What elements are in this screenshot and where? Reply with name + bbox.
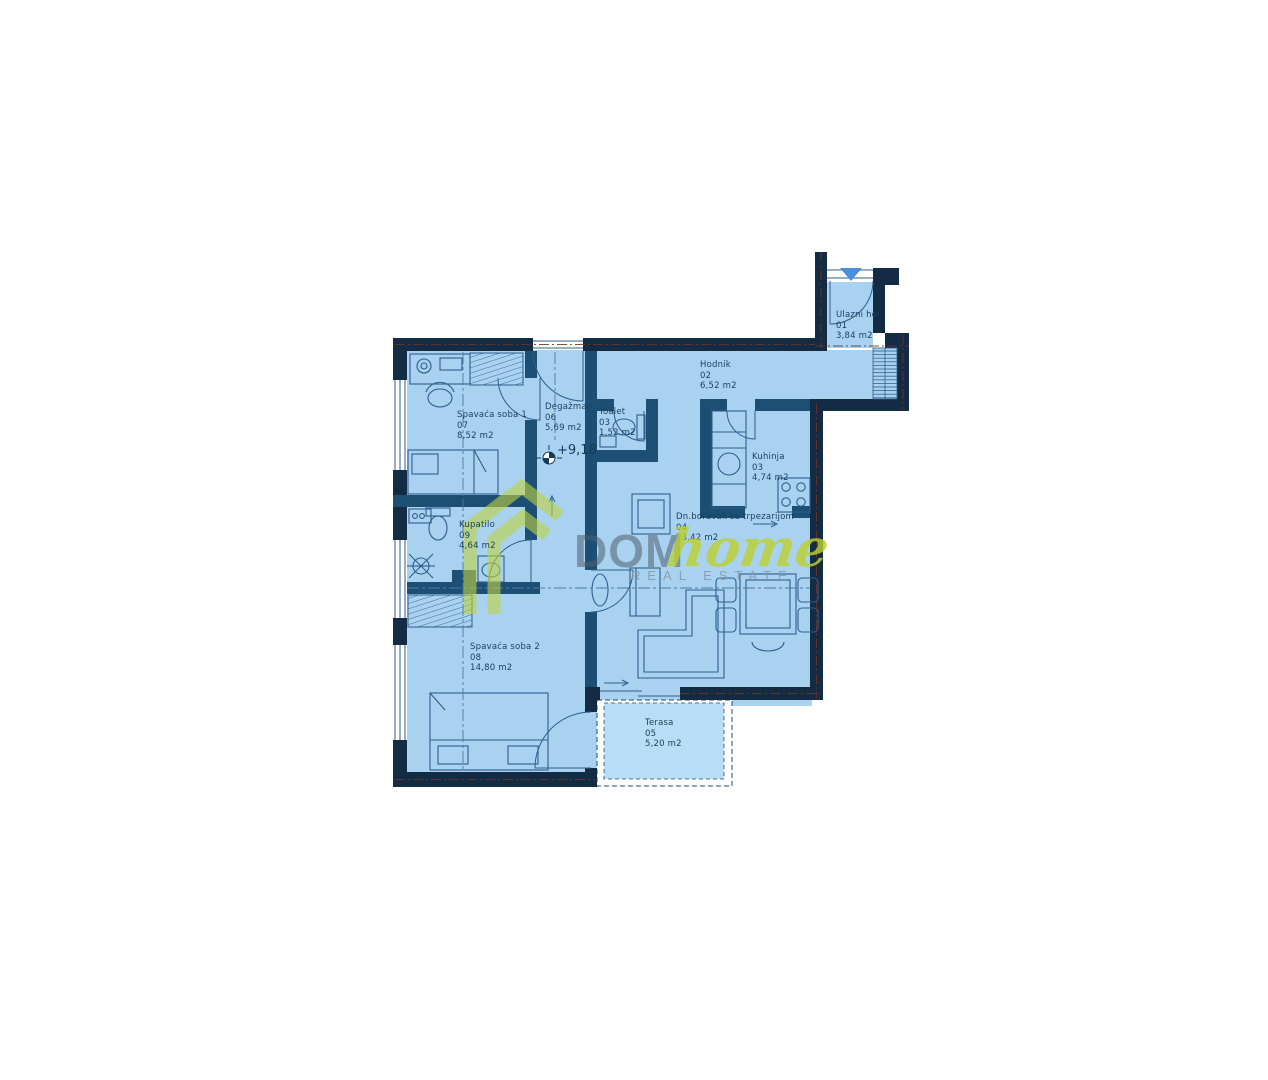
room-area: 5,69 m2 [545, 423, 592, 434]
room-label-terasa: Terasa 05 5,20 m2 [645, 718, 682, 750]
room-area: 14,80 m2 [470, 663, 540, 674]
room-label-kuhinja: Kuhinja 03 4,74 m2 [752, 452, 789, 484]
room-area: 3,84 m2 [836, 331, 880, 342]
room-number: 01 [836, 321, 880, 332]
room-label-kupatilo: Kupatilo 09 4,64 m2 [459, 520, 496, 552]
room-number: 07 [457, 421, 527, 432]
window-bathroom [393, 537, 407, 621]
room-area: 4,64 m2 [459, 541, 496, 552]
watermark-tagline: REAL ESTATE [631, 568, 794, 583]
room-name: Terasa [645, 718, 682, 729]
room-number: 05 [645, 729, 682, 740]
window-bedroom1 [393, 377, 407, 473]
wardrobe-bedroom1 [470, 353, 523, 385]
room-label-hodnik: Hodnik 02 6,52 m2 [700, 360, 737, 392]
floorplan-page: Ulazni hol 01 3,84 m2 Hodnik 02 6,52 m2 … [0, 0, 1268, 1080]
room-name: Hodnik [700, 360, 737, 371]
room-number: 09 [459, 531, 496, 542]
window-bedroom2 [393, 642, 407, 743]
room-name: Spavaća soba 2 [470, 642, 540, 653]
room-area: 1,52 m2 [599, 428, 636, 439]
room-area: 5,20 m2 [645, 739, 682, 750]
room-name: Ulazni hol [836, 310, 880, 321]
room-name: Kuhinja [752, 452, 789, 463]
room-number: 03 [599, 418, 636, 429]
level-marker-text: +9,18 [557, 443, 597, 458]
room-label-toalet: Toalet 03 1,52 m2 [599, 407, 636, 439]
room-number: 06 [545, 413, 592, 424]
wardrobe-bedroom2 [408, 595, 472, 627]
room-number: 03 [752, 463, 789, 474]
room-label-spavaca-soba-1: Spavaća soba 1 07 8,52 m2 [457, 410, 527, 442]
entrance-threshold [827, 266, 873, 282]
room-name: Kupatilo [459, 520, 496, 531]
shaft-hatch [873, 348, 897, 399]
room-area: 6,52 m2 [700, 381, 737, 392]
room-number: 08 [470, 653, 540, 664]
room-name: Spavaća soba 1 [457, 410, 527, 421]
room-area: 8,52 m2 [457, 431, 527, 442]
room-label-degazman: Degažman 06 5,69 m2 [545, 402, 592, 434]
room-label-ulazni-hol: Ulazni hol 01 3,84 m2 [836, 310, 880, 342]
room-area: 4,74 m2 [752, 473, 789, 484]
room-label-spavaca-soba-2: Spavaća soba 2 08 14,80 m2 [470, 642, 540, 674]
room-number: 02 [700, 371, 737, 382]
room-name: Toalet [599, 407, 636, 418]
room-name: Degažman [545, 402, 592, 413]
windows [393, 377, 407, 743]
